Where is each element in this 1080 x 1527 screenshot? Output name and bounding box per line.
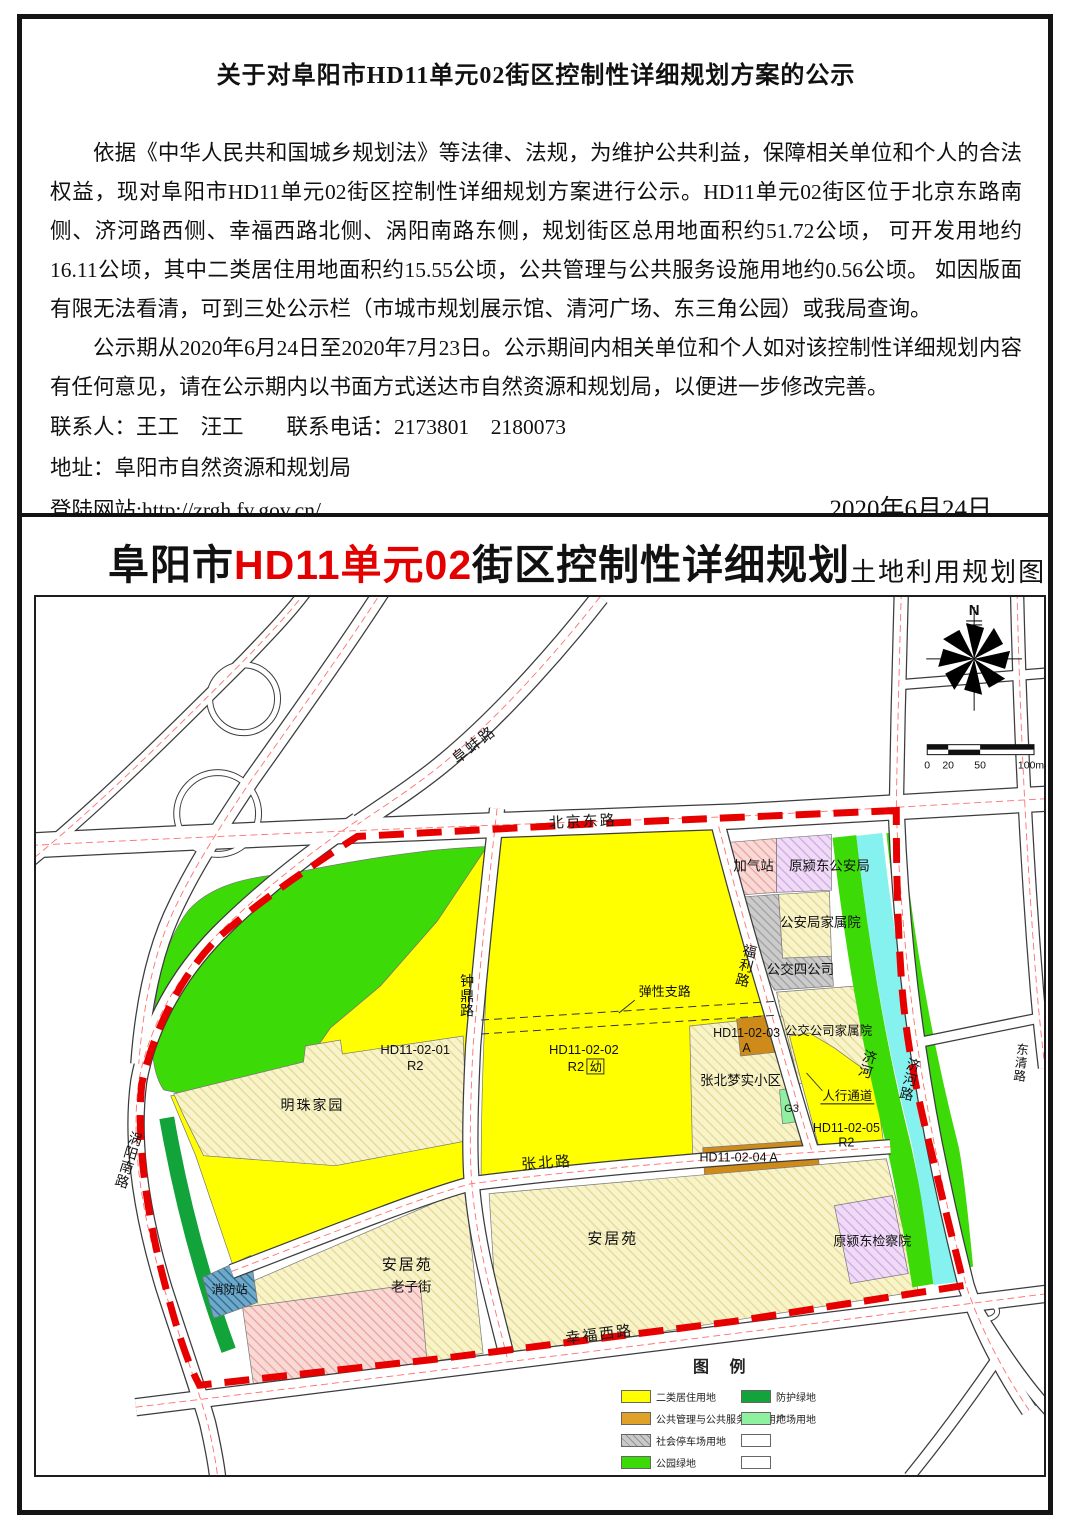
label-pedestrian-passage: 人行通道 [822, 1089, 872, 1103]
label-procuratorate: 原颍东检察院 [833, 1234, 911, 1249]
label-police-family: 公安局家属院 [780, 914, 861, 930]
land-use-map-frame: 阜蚌路 北京东路 钟鼎路 福利路 张北路 幸福西路 涡阳南路 济河路 东清路 弹… [34, 595, 1046, 1477]
label-laozi-street: 老子街 [391, 1279, 431, 1294]
scale-50: 50 [974, 761, 986, 772]
legend-swatch-parking [621, 1434, 651, 1447]
label-g3: G3 [784, 1103, 799, 1115]
label-zhongding-road: 钟鼎路 [460, 973, 474, 1019]
legend-swatch-park-green [621, 1456, 651, 1469]
address-line: 地址：阜阳市自然资源和规划局 [50, 448, 1022, 489]
legend-swatch-plaza [741, 1412, 771, 1425]
map-title: 阜阳市HD11单元02街区控制性详细规划 [108, 531, 850, 591]
label-dongqing-road: 东清路 [1013, 1042, 1030, 1084]
legend-item: 公园绿地 [621, 1455, 741, 1470]
legend-item: 二类居住用地 [621, 1389, 741, 1404]
legend-item: 公共管理与公共服务设施用地 [621, 1411, 741, 1426]
label-former-police: 原颍东公安局 [789, 858, 870, 873]
legend-swatch-protective-green [741, 1390, 771, 1403]
label-zone01-code: HD11-02-01 [380, 1042, 450, 1057]
scale-100: 100m [1018, 761, 1044, 772]
label-bus-family: 公交公司家属院 [785, 1023, 873, 1038]
legend-swatch-blank-2 [741, 1456, 771, 1469]
notice-paragraph-2: 公示期从2020年6月24日至2020年7月23日。公示期间内相关单位和个人如对… [50, 329, 1022, 407]
public-notice: 关于对阜阳市HD11单元02街区控制性详细规划方案的公示 依据《中华人民共和国城… [22, 19, 1048, 513]
legend-item [741, 1433, 861, 1448]
legend-item: 防护绿地 [741, 1389, 861, 1404]
notice-paragraph-1: 依据《中华人民共和国城乡规划法》等法律、法规，为维护公共利益，保障相关单位和个人… [50, 134, 1022, 329]
north-arrow: N [926, 602, 1022, 711]
label-mingzhu-jiayuan: 明珠家园 [281, 1097, 345, 1113]
map-subtitle: 土地利用规划图 [850, 552, 1046, 591]
label-fire-station: 消防站 [212, 1281, 248, 1296]
legend-item [741, 1455, 861, 1470]
label-elastic-branch-road: 弹性支路 [639, 984, 691, 999]
label-gas-station: 加气站 [733, 858, 773, 873]
label-zhangbei-mengshi: 张北梦实小区 [700, 1073, 781, 1088]
label-zone05-use: R2 [838, 1136, 854, 1150]
label-zone02-use: R2 [568, 1059, 585, 1074]
map-title-highlight: HD11单元02 [234, 542, 472, 588]
page-border: 关于对阜阳市HD11单元02街区控制性详细规划方案的公示 依据《中华人民共和国城… [17, 14, 1053, 1515]
label-anjuyuan-left: 安居苑 [382, 1256, 433, 1273]
legend-item: 广场用地 [741, 1411, 861, 1426]
scale-20: 20 [942, 761, 954, 772]
label-zone03-code: HD11-02-03 [713, 1026, 780, 1040]
label-zone02-kindergarten: 幼 [590, 1060, 602, 1074]
label-bus-company: 公交四公司 [767, 961, 834, 977]
legend-item: 社会停车场用地 [621, 1433, 741, 1448]
publish-date: 2020年6月24日 [829, 489, 992, 513]
label-zone01-use: R2 [407, 1058, 424, 1073]
label-zhangbei-road: 张北路 [521, 1153, 573, 1174]
legend-swatch-residential [621, 1390, 651, 1403]
legend-swatch-blank-1 [741, 1434, 771, 1447]
map-legend: 图 例 二类居住用地 公共管理与公共服务设施用地 社会停车场用地 公园绿地 防护… [621, 1353, 981, 1477]
website-line: 登陆网站:http://zrgh.fy.gov.cn/ [50, 490, 321, 513]
label-zone05-code: HD11-02-05 [813, 1121, 880, 1135]
notice-title: 关于对阜阳市HD11单元02街区控制性详细规划方案的公示 [50, 55, 1022, 90]
label-zone02-code: HD11-02-02 [549, 1042, 619, 1057]
legend-title: 图 例 [693, 1353, 981, 1377]
label-beijing-east-road: 北京东路 [548, 812, 616, 832]
plan-map-section: 阜阳市HD11单元02街区控制性详细规划 土地利用规划图 [22, 513, 1048, 1477]
label-zone04-code: HD11-02-04 A [700, 1151, 779, 1165]
land-use-map: 阜蚌路 北京东路 钟鼎路 福利路 张北路 幸福西路 涡阳南路 济河路 东清路 弹… [36, 597, 1044, 1475]
scale-0: 0 [924, 761, 930, 772]
label-anjuyuan-right: 安居苑 [587, 1231, 638, 1248]
label-zone03-use: A [742, 1041, 751, 1055]
contact-line: 联系人：王工 汪工 联系电话：2173801 2180073 [50, 407, 1022, 448]
legend-swatch-public-facility [621, 1412, 651, 1425]
